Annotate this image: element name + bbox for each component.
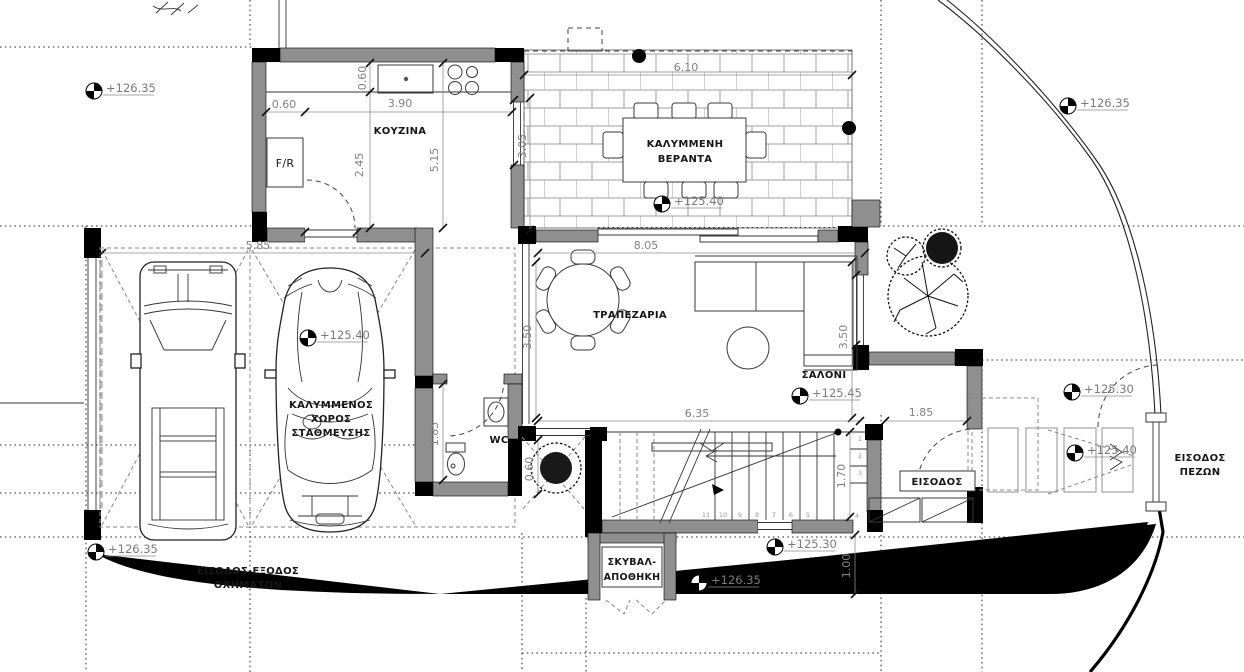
mirror bbox=[131, 354, 141, 368]
step-number: 6 bbox=[789, 511, 793, 519]
label-kitchen: ΚΟΥΖΙΝΑ bbox=[374, 126, 427, 137]
step-number: 10 bbox=[719, 511, 727, 519]
label-vehicle-access: ΟΧΗΜΑΤΩΝ bbox=[214, 580, 282, 591]
chair bbox=[571, 250, 595, 264]
label-pedestrian-entrance: ΠΕΖΩΝ bbox=[1180, 467, 1221, 478]
gate-post bbox=[1146, 502, 1166, 511]
label-pedestrian-entrance: ΕΙΣΟΔΟΣ bbox=[1174, 453, 1225, 464]
dim-text: 3.05 bbox=[516, 134, 529, 159]
elevation-text: +126.35 bbox=[1080, 96, 1130, 110]
dim-text: 1.00 bbox=[840, 554, 853, 579]
dim-text: 0.60 bbox=[272, 98, 297, 111]
label-parking: ΣΤΑΘΜΕΥΣΗΣ bbox=[292, 428, 371, 439]
label-wc: WC bbox=[490, 435, 509, 446]
mirror bbox=[265, 370, 276, 378]
sliding-door-panel bbox=[598, 229, 738, 235]
step-number: 2 bbox=[858, 452, 862, 460]
label-vehicle-access: ΕΙΣΟΔΟΣ-ΕΞΟΔΟΣ bbox=[197, 566, 299, 577]
chair bbox=[603, 132, 623, 158]
elevation-text: +125.40 bbox=[1087, 443, 1137, 457]
sofa-chaise bbox=[804, 262, 853, 366]
dim-text: 1.85 bbox=[909, 406, 934, 419]
floor-plan-sheet: 0.60 3.90 0.60 2.45 5.15 6.10 3.05 5.85 … bbox=[0, 0, 1244, 672]
step-number: 1 bbox=[858, 435, 862, 443]
label-living: ΣΑΛΟΝΙ bbox=[802, 370, 847, 381]
column-dot bbox=[632, 49, 646, 63]
dim-text: 5.15 bbox=[428, 148, 441, 173]
dining-table bbox=[547, 264, 619, 336]
dim-text: 1.70 bbox=[835, 464, 848, 489]
label-garbage: ΑΠΟΘΗΚΗ bbox=[604, 572, 661, 583]
sofa-armrest bbox=[804, 355, 853, 366]
window bbox=[536, 429, 590, 436]
elevation-text: +126.35 bbox=[106, 81, 156, 95]
dim-text: 3.50 bbox=[837, 325, 850, 350]
window bbox=[857, 275, 864, 345]
chair bbox=[644, 182, 668, 198]
elevation-text: +125.45 bbox=[812, 386, 862, 400]
elevation-marker: +125.30 bbox=[767, 537, 837, 555]
step-number: 9 bbox=[738, 511, 742, 519]
elevation-marker: +125.30 bbox=[1064, 382, 1134, 400]
step-number: 7 bbox=[772, 511, 776, 519]
dim-text: 2.45 bbox=[353, 153, 366, 178]
dim-text: 6.35 bbox=[685, 407, 710, 420]
elevation-text: +126.35 bbox=[711, 573, 761, 587]
chair bbox=[746, 132, 766, 158]
veranda-table bbox=[623, 118, 746, 182]
chair bbox=[672, 103, 696, 119]
dim-text: 1.85 bbox=[428, 422, 441, 447]
column-dot bbox=[842, 121, 856, 135]
elevation-marker: +126.35 bbox=[1060, 96, 1130, 114]
step-number: 5 bbox=[806, 511, 810, 519]
tree-large bbox=[887, 229, 968, 336]
step-number: 11 bbox=[702, 511, 710, 519]
chair bbox=[708, 103, 732, 119]
elevation-text: +125.40 bbox=[320, 328, 370, 342]
label-entrance: ΕΙΣΟΔΟΣ bbox=[911, 477, 962, 488]
garbage-door-swing bbox=[606, 600, 666, 614]
dim-text: 0.60 bbox=[523, 457, 536, 482]
dim-text: 3.50 bbox=[521, 325, 534, 350]
mirror bbox=[384, 370, 395, 378]
survey-mark bbox=[153, 2, 198, 15]
elevation-text: +125.40 bbox=[674, 194, 724, 208]
label-dining: ΤΡΑΠΕΖΑΡΙΑ bbox=[593, 310, 667, 321]
elevation-text: +126.35 bbox=[108, 542, 158, 556]
label-veranda: ΚΑΛΥΜΜΕΝΗ bbox=[647, 139, 724, 150]
vehicle-truck bbox=[131, 262, 245, 540]
coffee-table bbox=[727, 327, 769, 369]
paving-slab bbox=[1064, 428, 1096, 492]
elevation-marker: +126.35 bbox=[86, 81, 156, 99]
chair bbox=[571, 336, 595, 350]
tree-small bbox=[540, 452, 572, 484]
label-veranda: ΒΕΡΑΝΤΑ bbox=[658, 154, 713, 165]
pedestrian-gate bbox=[1153, 422, 1159, 502]
step-number: 8 bbox=[755, 511, 759, 519]
dim-text: 3.90 bbox=[388, 97, 413, 110]
label-garbage: ΣΚΥΒΑΛ- bbox=[608, 557, 657, 568]
chair bbox=[634, 103, 658, 119]
label-fridge: F/R bbox=[276, 157, 295, 170]
label-parking: ΧΩΡΟΣ bbox=[311, 414, 351, 425]
dim-text: 0.60 bbox=[356, 66, 369, 91]
elevation-text: +125.30 bbox=[1084, 382, 1134, 396]
dim-text: 6.10 bbox=[674, 61, 699, 74]
step-number: 3 bbox=[858, 469, 862, 477]
gate-post bbox=[1146, 413, 1166, 422]
paving-slab bbox=[1026, 428, 1057, 492]
west-wall bbox=[88, 258, 96, 510]
elevation-text: +125.30 bbox=[787, 537, 837, 551]
label-parking: ΚΑΛΥΜΜΕΝΟΣ bbox=[289, 400, 373, 411]
paving-slab bbox=[988, 428, 1018, 492]
floor-plan: 0.60 3.90 0.60 2.45 5.15 6.10 3.05 5.85 … bbox=[0, 0, 1244, 672]
mirror bbox=[235, 354, 245, 368]
dim-text: 8.05 bbox=[634, 239, 659, 252]
step-number: 4 bbox=[855, 512, 859, 520]
dim-text: 5.85 bbox=[246, 239, 271, 252]
